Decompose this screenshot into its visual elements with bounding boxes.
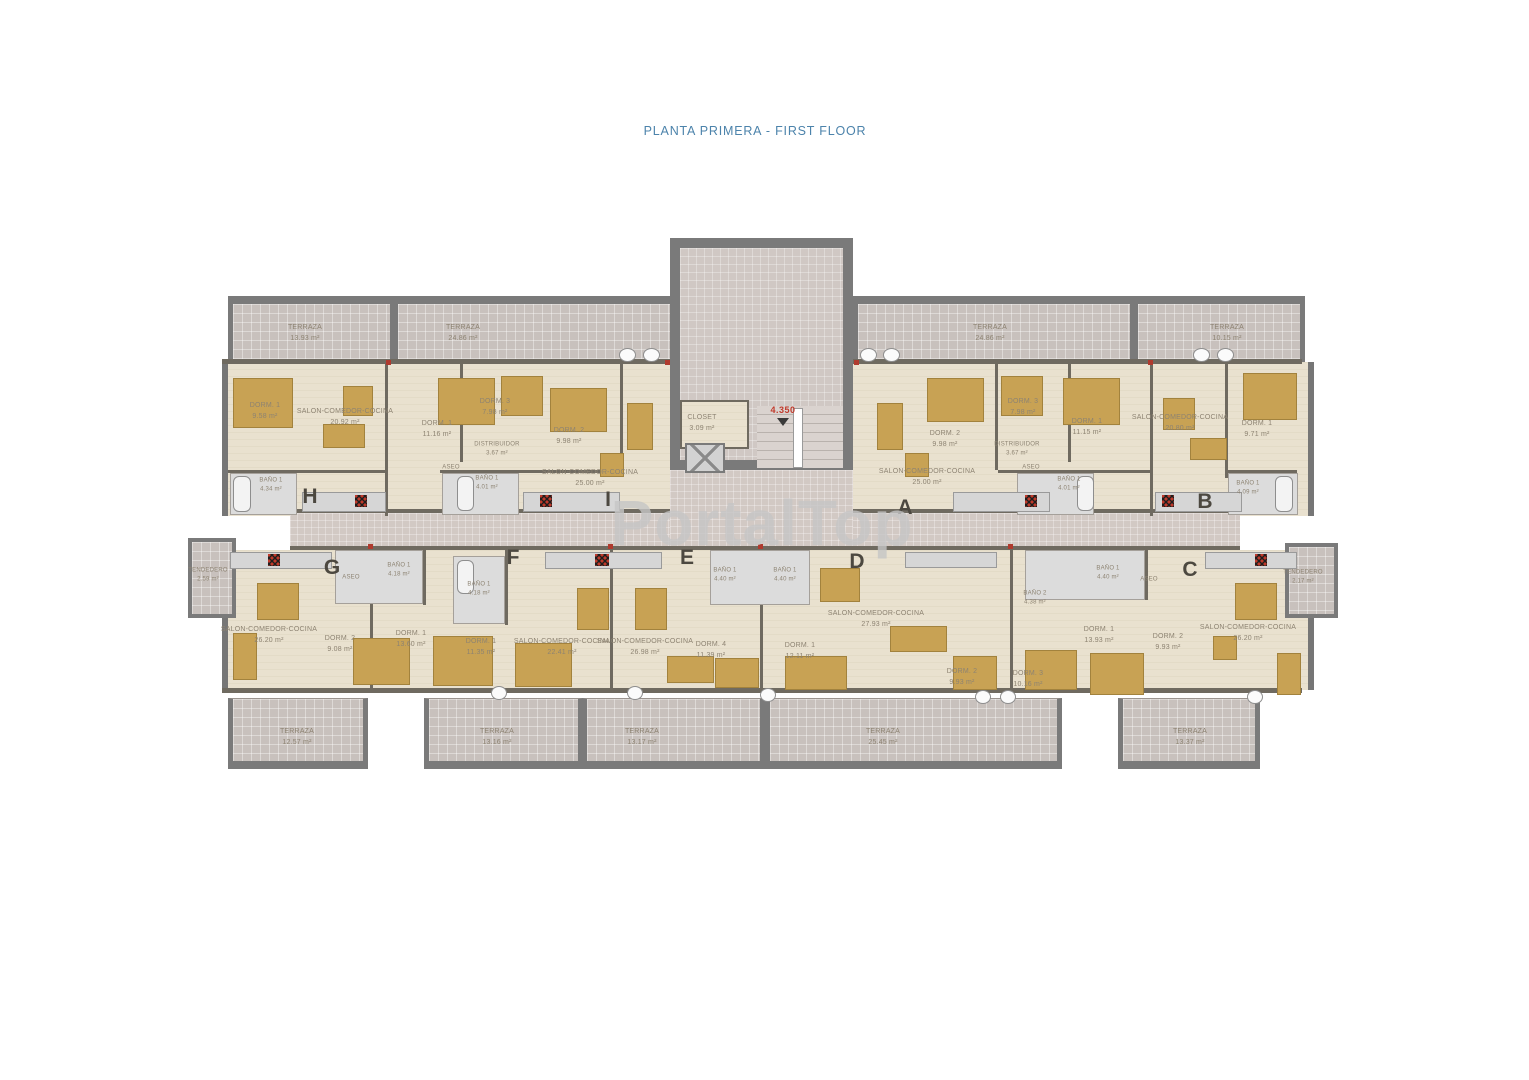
level-arrow-icon	[777, 418, 789, 426]
stool	[1193, 348, 1210, 362]
room-label: SALON-COMEDOR-COCINA26.20 m²	[221, 625, 317, 647]
marker-red-3	[854, 360, 859, 365]
table	[577, 588, 609, 630]
sofa	[1190, 438, 1227, 460]
terrace-label: TERRAZA13.37 m²	[1173, 727, 1207, 749]
apartment-letter-h: H	[302, 485, 317, 509]
bathtub-b	[1275, 476, 1293, 512]
room-label: BAÑO 14.40 m²	[1096, 565, 1119, 584]
kitchen-g	[230, 552, 332, 569]
room-label: DORM. 19.71 m²	[1242, 419, 1273, 441]
wall-f-e	[610, 550, 613, 690]
apartment-letter-b: B	[1197, 490, 1212, 514]
room-label: SALON-COMEDOR-COCINA20.92 m²	[297, 407, 393, 429]
room-label: BAÑO 14.40 m²	[713, 567, 736, 586]
terrace-label: TERRAZA13.16 m²	[480, 727, 514, 749]
stool	[860, 348, 877, 362]
stool	[1247, 690, 1263, 704]
room-label: DORM. 111.15 m²	[1072, 417, 1103, 439]
stool	[760, 688, 776, 702]
stool	[619, 348, 636, 362]
room-label: DORM. 29.98 m²	[930, 429, 961, 451]
room-label: ASEO	[342, 573, 359, 582]
marker-red-2	[665, 360, 670, 365]
sofa	[1277, 653, 1301, 695]
elevator	[685, 443, 725, 473]
room-label: DORM. 29.93 m²	[1153, 632, 1184, 654]
sofa	[877, 403, 903, 450]
room-label: DORM. 29.93 m²	[947, 667, 978, 689]
floor-plan-page: PLANTA PRIMERA - FIRST FLOOR	[0, 0, 1529, 1080]
room-label: BAÑO 14.01 m²	[475, 475, 498, 494]
facade-wall-top-left	[222, 359, 670, 364]
room-label: ASEO	[1022, 463, 1039, 472]
marker-red-4	[1148, 360, 1153, 365]
room-label: DORM. 37.98 m²	[480, 397, 511, 419]
terrace-label: TERRAZA24.86 m²	[446, 323, 480, 345]
room-label: DORM. 113.93 m²	[1084, 625, 1115, 647]
page-title: PLANTA PRIMERA - FIRST FLOOR	[644, 124, 867, 138]
terrace-label: TERRAZA13.93 m²	[288, 323, 322, 345]
room-label: BAÑO 24.38 m²	[1023, 590, 1046, 609]
stool	[643, 348, 660, 362]
room-label: TENDEDERO2.59 m²	[188, 567, 227, 586]
apartment-letter-c: C	[1182, 558, 1197, 582]
wall-g-bath	[423, 550, 426, 605]
room-label: DORM. 19.58 m²	[250, 401, 281, 423]
terrace-label: TERRAZA12.57 m²	[280, 727, 314, 749]
stool	[975, 690, 991, 704]
terrace-bottom-e	[582, 698, 765, 769]
terrace-label: TERRAZA10.15 m²	[1210, 323, 1244, 345]
marker-red-5	[368, 544, 373, 549]
room-label: DORM. 310.16 m²	[1013, 669, 1044, 691]
apartment-letter-g: G	[324, 556, 340, 580]
marker-red-8	[1008, 544, 1013, 549]
hob-f-e	[595, 554, 609, 566]
room-label: ASEO	[1140, 575, 1157, 584]
watermark: PortalTop	[611, 486, 914, 560]
hob-c	[1255, 554, 1267, 566]
room-label: BAÑO 14.18 m²	[387, 562, 410, 581]
bed	[927, 378, 984, 422]
room-label: DORM. 37.98 m²	[1008, 397, 1039, 419]
hob-b	[1162, 495, 1174, 507]
bed	[715, 658, 759, 688]
terrace-label: TERRAZA24.86 m²	[973, 323, 1007, 345]
room-label: BAÑO 14.40 m²	[773, 567, 796, 586]
bed	[1090, 653, 1144, 695]
hob-i	[540, 495, 552, 507]
floor-plan: CLOSET 3.09 m² 4.350 TERRAZA13.93 m² TER…	[205, 238, 1330, 766]
bed	[1243, 373, 1297, 420]
stool	[491, 686, 507, 700]
kitchen-d	[905, 552, 997, 568]
room-label: ASEO	[442, 463, 459, 472]
hob-a	[1025, 495, 1037, 507]
stool	[1000, 690, 1016, 704]
room-label: BAÑO 14.01 m²	[1057, 476, 1080, 495]
bathtub-h	[233, 476, 251, 512]
room-label: DORM. 113.60 m²	[396, 629, 427, 651]
stool	[627, 686, 643, 700]
terrace-label: TERRAZA25.45 m²	[866, 727, 900, 749]
apartment-letter-f: F	[507, 546, 520, 570]
bathtub-i	[457, 476, 474, 511]
closet-label: CLOSET 3.09 m²	[687, 413, 716, 435]
room-label: TENDEDERO2.17 m²	[1283, 569, 1322, 588]
level-mark: 4.350	[770, 405, 795, 415]
room-label: BAÑO 14.34 m²	[259, 477, 282, 496]
room-label: SALON-COMEDOR-COCINA26.98 m²	[597, 637, 693, 659]
room-label: DISTRIBUIDOR3.67 m²	[994, 441, 1039, 460]
sofa	[627, 403, 653, 450]
room-label: DORM. 29.98 m²	[554, 426, 585, 448]
table	[635, 588, 667, 630]
room-label: DORM. 29.08 m²	[325, 634, 356, 656]
stair-rail	[793, 408, 803, 468]
room-label: DORM. 111.35 m²	[466, 637, 497, 659]
room-label: SALON-COMEDOR-COCINA26.20 m²	[1200, 623, 1296, 645]
room-label: SALON-COMEDOR-COCINA20.80 m²	[1132, 413, 1228, 435]
table	[257, 583, 299, 620]
facade-wall-top-right	[853, 359, 1302, 364]
stool	[883, 348, 900, 362]
marker-red-1	[386, 360, 391, 365]
room-label: SALON-COMEDOR-COCINA22.41 m²	[514, 637, 610, 659]
room-label: DORM. 112.11 m²	[785, 641, 816, 663]
room-label: BAÑO 14.09 m²	[1236, 480, 1259, 499]
terrace-bottom-d	[765, 698, 1062, 769]
hob-g	[268, 554, 280, 566]
kitchen-c	[1205, 552, 1297, 569]
stool	[1217, 348, 1234, 362]
table	[1235, 583, 1277, 620]
room-label: DORM. 411.39 m²	[696, 640, 727, 662]
room-label: DISTRIBUIDOR3.67 m²	[474, 441, 519, 460]
room-label: SALON-COMEDOR-COCINA27.93 m²	[828, 609, 924, 631]
room-label: DORM. 111.16 m²	[422, 419, 453, 441]
wall-a-b	[1150, 362, 1153, 516]
terrace-label: TERRAZA13.17 m²	[625, 727, 659, 749]
room-label: BAÑO 14.18 m²	[467, 581, 490, 600]
hob-h	[355, 495, 367, 507]
